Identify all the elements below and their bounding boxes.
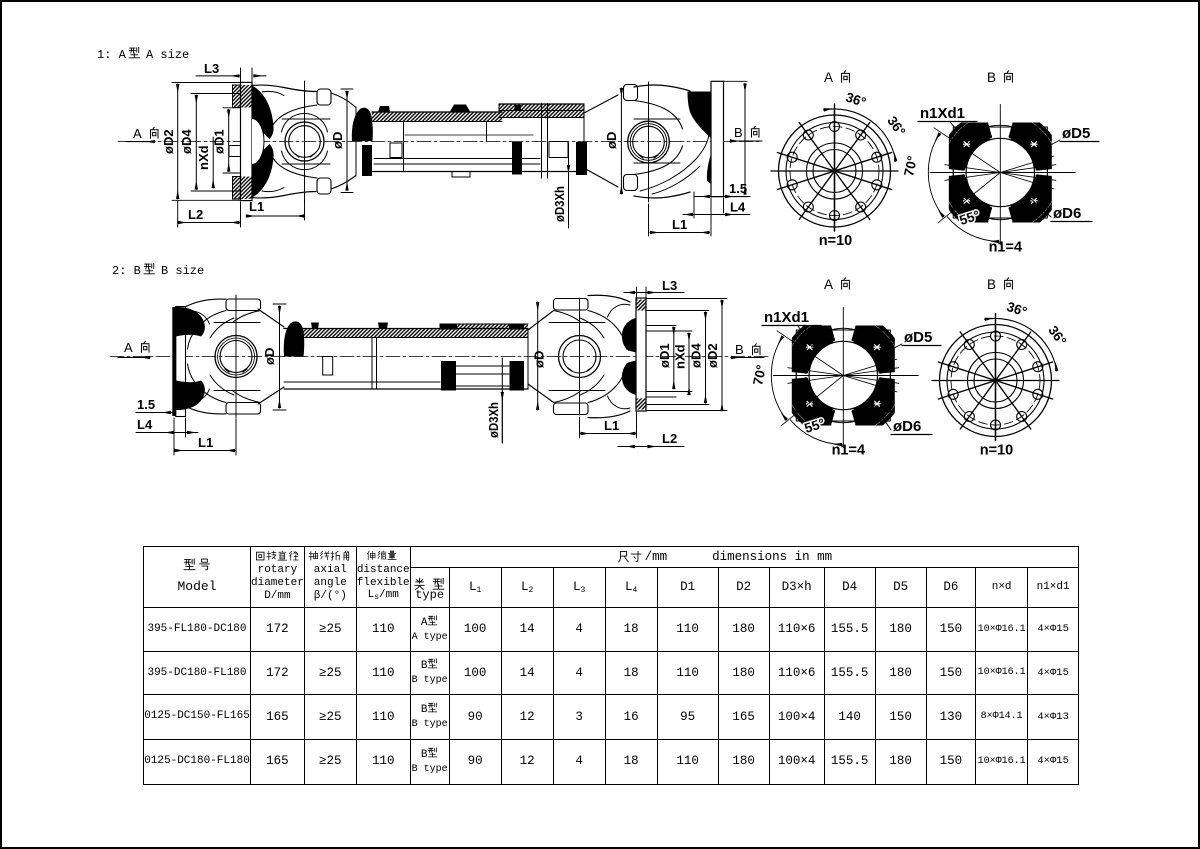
svg-text:A: A [824, 277, 833, 292]
svg-text:L1: L1 [604, 418, 619, 433]
svg-text:L2: L2 [188, 207, 203, 222]
svg-text:øD2: øD2 [161, 129, 176, 154]
svg-text:øD3Xh: øD3Xh [486, 402, 501, 438]
svg-text:n=10: n=10 [980, 443, 1013, 459]
svg-text:øD6: øD6 [1053, 205, 1081, 222]
svg-text:nXd: nXd [196, 145, 211, 170]
svg-text:L3: L3 [204, 61, 219, 76]
svg-text:36°: 36° [844, 89, 868, 110]
svg-text:A: A [824, 70, 833, 85]
svg-text:n=10: n=10 [819, 233, 852, 249]
svg-text:L1: L1 [198, 435, 213, 450]
svg-text:A: A [124, 340, 133, 355]
svg-text:øD2: øD2 [705, 343, 720, 368]
svg-text:36°: 36° [884, 113, 908, 138]
svg-text:1.5: 1.5 [137, 397, 155, 412]
svg-text:70°: 70° [750, 364, 769, 387]
svg-text:øD4: øD4 [689, 343, 704, 368]
svg-text:øD4: øD4 [179, 129, 194, 154]
svg-text:B: B [987, 277, 996, 292]
svg-text:1: A: 1: A [97, 48, 127, 62]
svg-text:øD3Xh: øD3Xh [552, 186, 567, 222]
svg-text:A: A [133, 126, 142, 141]
svg-text:L1: L1 [249, 199, 264, 214]
svg-text:L4: L4 [137, 417, 153, 432]
svg-text:øD1: øD1 [212, 129, 227, 154]
svg-text:øD: øD [532, 351, 547, 368]
svg-text:1.5: 1.5 [729, 181, 747, 196]
svg-text:øD: øD [604, 132, 619, 149]
svg-text:70°: 70° [901, 155, 920, 178]
svg-text:øD6: øD6 [893, 418, 921, 435]
svg-text:L4: L4 [730, 200, 746, 215]
svg-text:n1=4: n1=4 [832, 443, 865, 459]
svg-text:L3: L3 [662, 278, 677, 293]
svg-text:36°: 36° [1045, 323, 1069, 348]
svg-text:øD5: øD5 [904, 329, 932, 346]
svg-text:øD5: øD5 [1062, 125, 1090, 142]
svg-text:A size: A size [146, 48, 189, 62]
svg-text:2: B: 2: B [112, 264, 141, 278]
svg-text:B size: B size [161, 264, 204, 278]
svg-text:nXd: nXd [673, 344, 688, 369]
svg-text:øD: øD [330, 132, 345, 149]
svg-text:L2: L2 [662, 431, 677, 446]
svg-text:n1=4: n1=4 [989, 240, 1022, 256]
svg-text:øD: øD [262, 348, 277, 365]
svg-text:B: B [987, 70, 996, 85]
svg-text:n1Xd1: n1Xd1 [920, 105, 965, 122]
svg-text:B: B [734, 125, 743, 140]
svg-text:n1Xd1: n1Xd1 [764, 309, 809, 326]
svg-text:øD1: øD1 [657, 343, 672, 368]
svg-text:36°: 36° [1005, 299, 1029, 320]
svg-text:B: B [735, 342, 744, 357]
svg-text:L1: L1 [672, 217, 687, 232]
